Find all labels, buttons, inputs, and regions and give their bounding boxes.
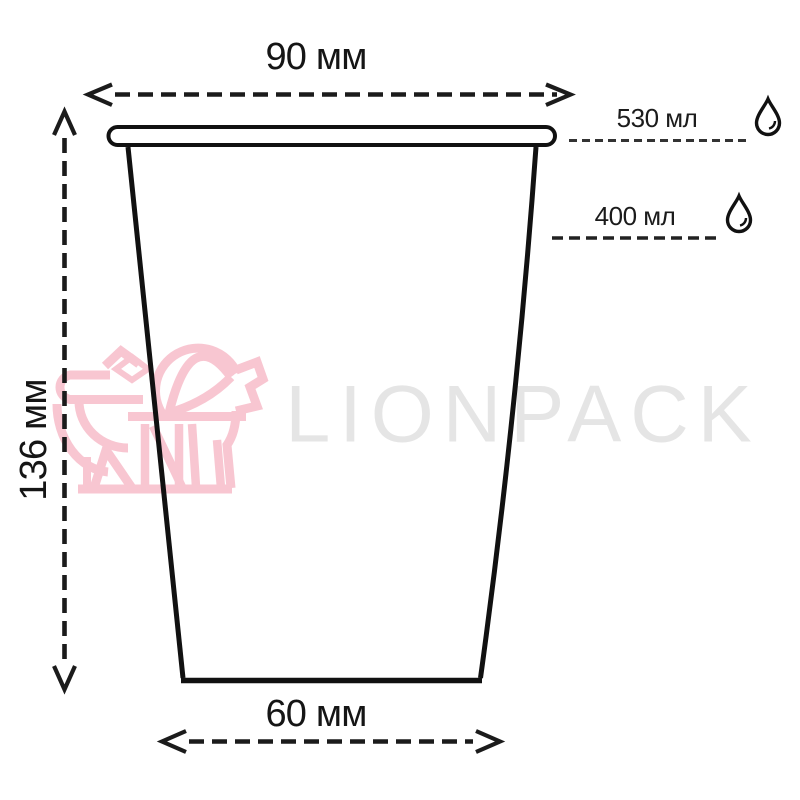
svg-text:60 мм: 60 мм — [265, 693, 366, 735]
svg-text:LIONPACK: LIONPACK — [285, 370, 761, 460]
svg-text:90 мм: 90 мм — [265, 36, 366, 78]
svg-text:136 мм: 136 мм — [13, 379, 55, 500]
svg-text:530 мл: 530 мл — [617, 103, 698, 133]
svg-text:400 мл: 400 мл — [595, 201, 676, 231]
